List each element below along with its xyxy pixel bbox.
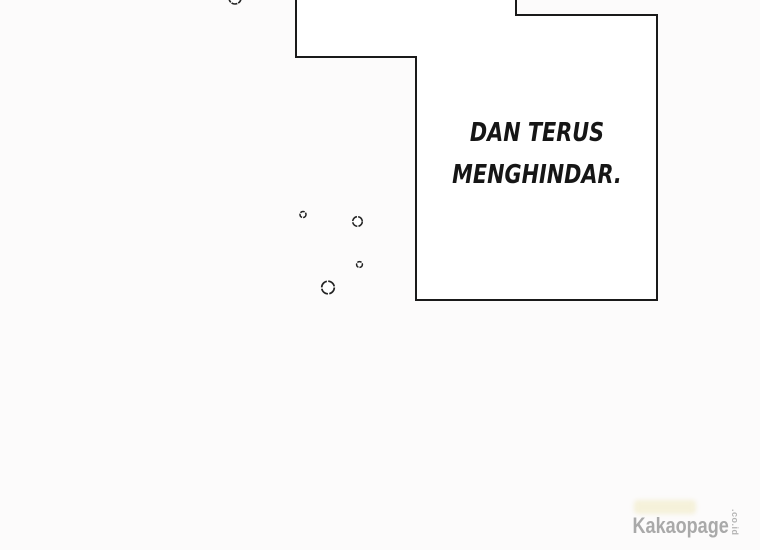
watermark: Kakaopage .co.id (612, 500, 752, 548)
bubble-circle-3 (357, 262, 363, 268)
comic-page: DAN TERUS MENGHINDAR. Kakaopage .co.id (0, 0, 760, 550)
faint-watermark-smudge (634, 500, 696, 514)
speech-line-1: DAN TERUS (442, 112, 632, 154)
speech-line-2: MENGHINDAR. (442, 154, 632, 196)
speech-bubble-text: DAN TERUS MENGHINDAR. (442, 112, 632, 196)
bubble-circle-1 (300, 212, 306, 218)
comic-art-layer (0, 0, 760, 550)
watermark-domain-suffix: .co.id (730, 509, 740, 545)
bubble-circle-top (229, 0, 241, 4)
watermark-brand: Kakaopage (633, 513, 726, 539)
bubble-circle-4 (322, 281, 335, 294)
bubble-circle-2 (353, 217, 363, 227)
